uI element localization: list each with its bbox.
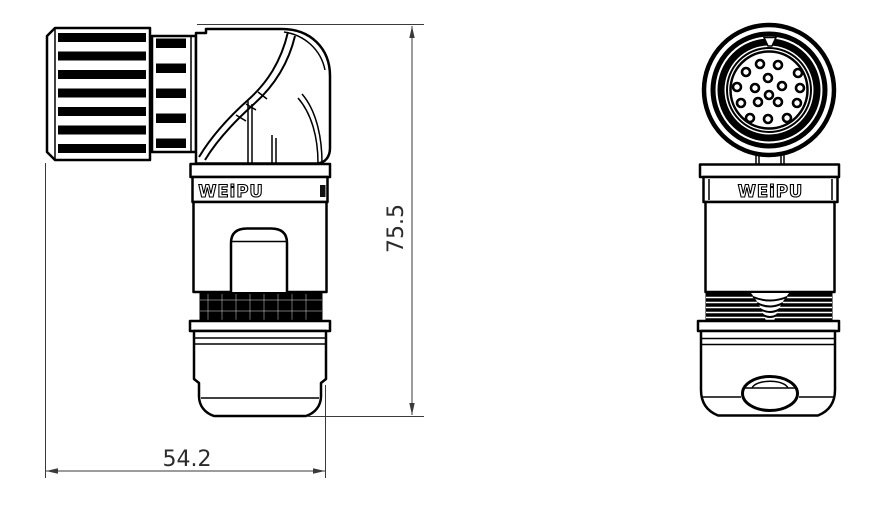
- side-shoulder-flange: [191, 164, 331, 177]
- elbow-body: [196, 29, 330, 164]
- front-view: WEiPU: [698, 25, 839, 416]
- side-view: WEiPU: [47, 28, 330, 416]
- contact-pin: [737, 99, 745, 107]
- contact-pin: [764, 115, 772, 123]
- arrow-up: [409, 26, 414, 38]
- arrow-left: [46, 468, 58, 473]
- contact-pin: [746, 114, 754, 122]
- contact-pin: [756, 60, 764, 68]
- front-shoulder-flange: [700, 165, 839, 178]
- width-dimension-label: 54.2: [163, 447, 212, 472]
- coupling-nut: [47, 28, 150, 160]
- side-cable-gland: [190, 321, 330, 416]
- arrow-down: [409, 403, 414, 415]
- front-cable-gland: [698, 321, 839, 416]
- nut-collar: [152, 36, 196, 152]
- side-thread: [200, 293, 322, 322]
- contact-pin: [793, 99, 801, 107]
- contact-pin: [774, 61, 782, 69]
- contact-pin: [783, 114, 791, 122]
- contact-pin: [796, 84, 804, 92]
- height-dimension-label: 75.5: [384, 204, 409, 253]
- band-seam-mark: [320, 185, 326, 197]
- contact-pin: [754, 98, 762, 106]
- front-thread: [706, 293, 832, 321]
- contact-pin: [794, 69, 802, 77]
- contact-pin: [742, 68, 750, 76]
- contact-pin: [733, 83, 741, 91]
- side-brand-logo: WEiPU: [198, 182, 264, 201]
- gland-dome-tab: [231, 229, 287, 293]
- contact-pin: [764, 74, 772, 82]
- contact-pin: [778, 82, 786, 90]
- side-brand-band: WEiPU: [193, 177, 328, 202]
- front-brand-band: WEiPU: [704, 177, 838, 202]
- arrow-right: [313, 468, 325, 473]
- contact-pin: [774, 98, 782, 106]
- front-body: [706, 202, 835, 292]
- technical-drawing: WEiPU: [0, 0, 880, 506]
- side-gland-nut: [194, 202, 327, 292]
- contact-pin: [751, 84, 759, 92]
- contact-pin: [765, 91, 773, 99]
- front-brand-logo: WEiPU: [738, 182, 804, 201]
